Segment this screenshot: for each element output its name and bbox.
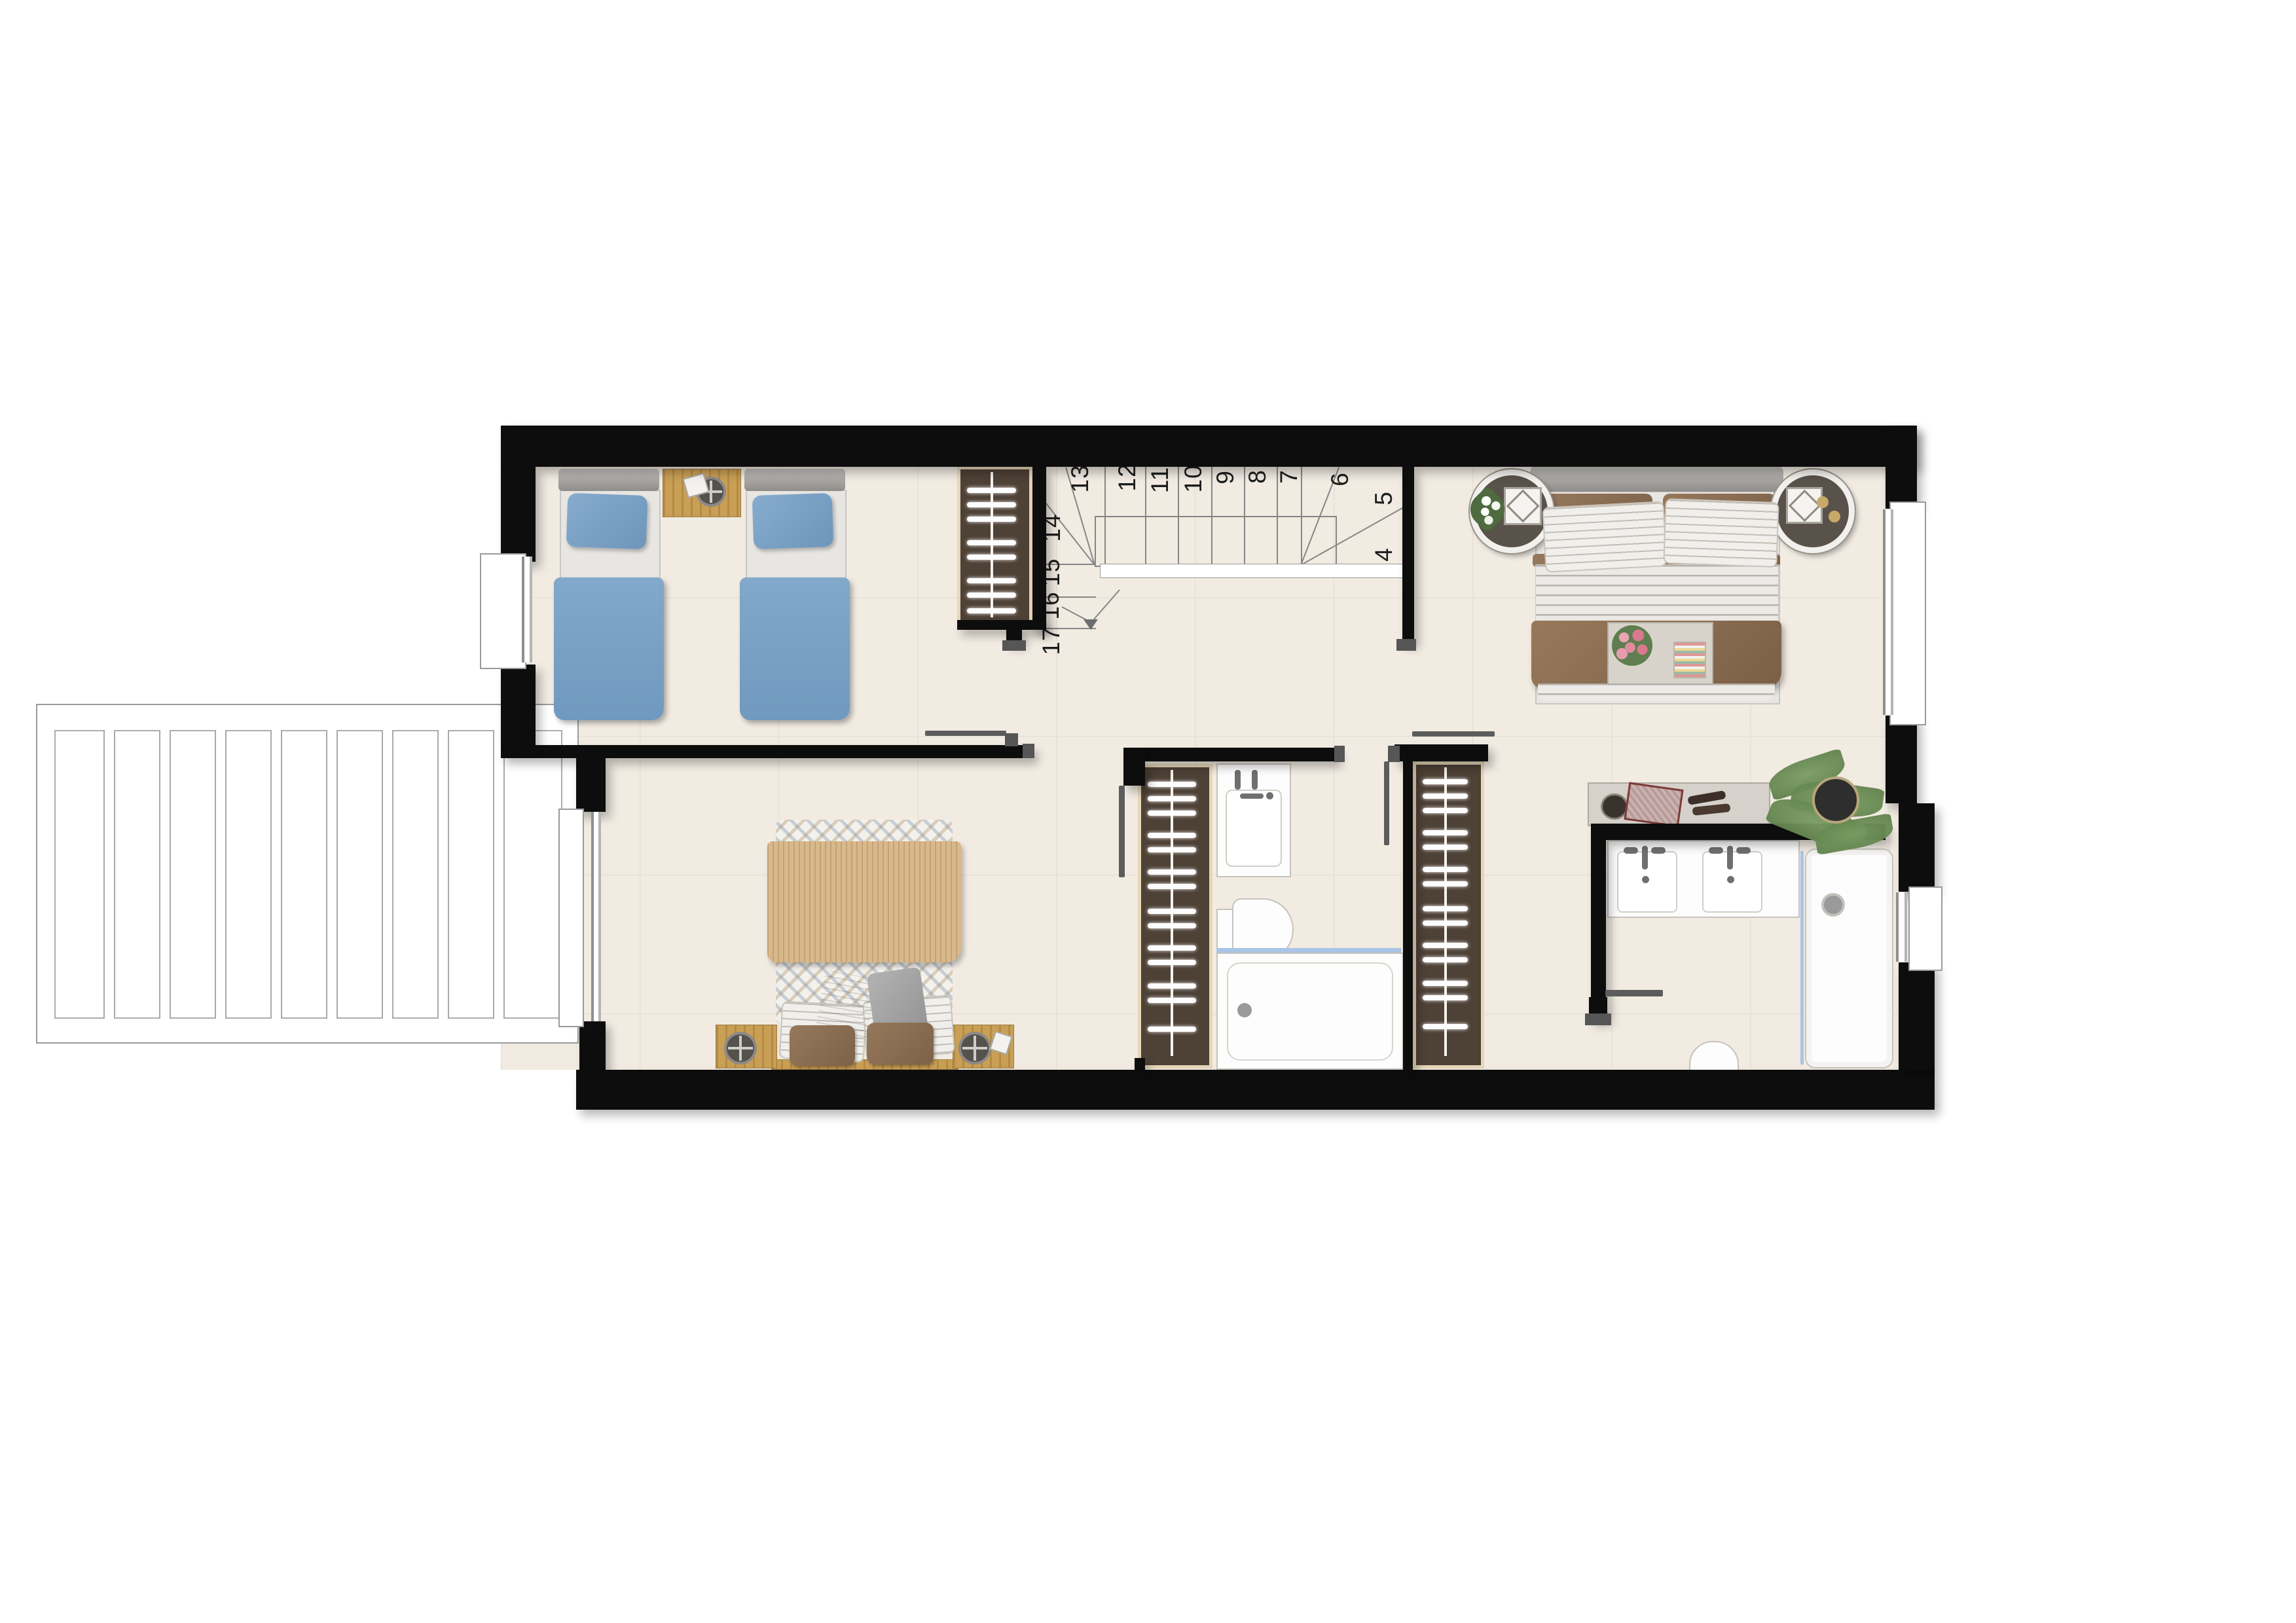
stair-step-number: 4 — [1370, 547, 1398, 562]
terrace-beam — [437, 730, 449, 1019]
sliding-door-bath — [1384, 761, 1389, 845]
wall-top — [501, 426, 1917, 467]
desk-books — [1624, 782, 1683, 827]
wardrobe-rail-bar — [1148, 869, 1196, 875]
stair-inner-rail — [1095, 516, 1337, 567]
wardrobe-rail-bar — [1423, 906, 1468, 911]
door-cap-stair-stub — [1002, 640, 1026, 651]
window-master-box — [1889, 501, 1926, 725]
wall-right-upper — [1886, 426, 1917, 509]
door-jamb-bath — [1388, 746, 1400, 762]
wardrobe-rail-bar — [1148, 811, 1196, 816]
terrace-beam — [326, 730, 338, 1019]
washbasin-bowl — [1226, 790, 1282, 867]
wardrobe-rail-bar — [1423, 867, 1468, 872]
wall-right-lower — [1899, 962, 1935, 1070]
wardrobe-rail-bar — [1423, 943, 1468, 948]
window-ensuite-glass — [1896, 892, 1907, 962]
wall-left-lower — [501, 665, 536, 745]
faucet-icon — [1642, 846, 1648, 869]
wall-right-mid2 — [1899, 803, 1935, 892]
window-ensuite-box — [1908, 886, 1942, 971]
sliding-door-ensuite — [1605, 990, 1663, 996]
terrace-door-glass — [591, 812, 601, 1021]
plant-pot — [1812, 776, 1859, 824]
tray-icon — [958, 1032, 991, 1065]
twin-bed1-headboard — [558, 469, 659, 491]
wardrobe-rail-bar — [1423, 995, 1468, 1000]
terrace-inner-top-line — [54, 730, 562, 731]
master-sheet-bottom — [1538, 684, 1775, 701]
master-tray-book — [1673, 642, 1706, 678]
master-pillow-white-left — [1542, 501, 1667, 573]
wall-bottom — [576, 1070, 1935, 1110]
door-cap-ensuite — [1585, 1013, 1611, 1025]
double-bed-knit-throw — [767, 841, 961, 962]
faucet-dot — [1237, 1003, 1252, 1017]
door-cap-twin2 — [1023, 744, 1034, 758]
master-duvet — [1535, 564, 1779, 629]
wall-left-upper — [501, 467, 536, 562]
shower — [1805, 848, 1893, 1068]
wardrobe-bedroom2 — [1138, 764, 1212, 1068]
door-cap-master — [1396, 639, 1416, 651]
wardrobe-rail-bar — [967, 540, 1016, 545]
terrace-beam — [159, 730, 171, 1019]
stair-void-strip — [1100, 564, 1404, 578]
faucet-icon — [1240, 793, 1264, 799]
wardrobe-rail-bar — [1423, 808, 1468, 813]
stair-step-number: 9 — [1212, 470, 1239, 484]
wall-wardrobe3-west — [1403, 761, 1413, 1070]
stair-step-number: 13 — [1066, 464, 1094, 492]
tray-icon — [724, 1032, 757, 1065]
twin-bed1-pillow — [566, 493, 648, 549]
sliding-door-bedroom2 — [1119, 786, 1125, 877]
stair-step-number: 12 — [1114, 463, 1141, 491]
wardrobe-rail-bar — [1148, 796, 1196, 801]
master-bed-headboard — [1530, 465, 1783, 492]
stair-step-number: 10 — [1180, 464, 1207, 492]
shower-glass — [1800, 851, 1804, 1065]
twin-bed2-headboard — [744, 469, 845, 491]
window-master-glass — [1883, 509, 1893, 715]
wardrobe-rail-bar — [1148, 833, 1196, 838]
stair-step-number: 6 — [1326, 472, 1354, 486]
flower-icon — [1612, 625, 1652, 666]
terrace-beam — [103, 730, 115, 1019]
master-nightstand-gold-dots — [1817, 496, 1829, 508]
wardrobe-rail-bar — [1148, 960, 1196, 965]
wardrobe-rail-bar — [1148, 1027, 1196, 1032]
wall-twin-south — [501, 745, 1033, 758]
stair-step-number: 11 — [1146, 467, 1174, 493]
double-bed-cushion-left — [790, 1025, 855, 1066]
drain-icon — [1821, 893, 1845, 917]
faucet-icon — [1727, 846, 1733, 869]
twin-bed2-blanket — [740, 577, 850, 720]
wardrobe-rail-bar — [967, 578, 1016, 583]
sliding-door-master — [1412, 731, 1495, 737]
wall-bed2-west-upper — [576, 758, 606, 812]
wardrobe-rail-bar — [1423, 1024, 1468, 1029]
wall-wardrobe1-cap — [957, 620, 1046, 630]
faucet-dot — [1727, 876, 1734, 883]
door-jamb-bath — [1334, 746, 1345, 762]
stair-step-number: 8 — [1244, 469, 1271, 484]
faucet-icon — [1709, 847, 1723, 854]
double-bed-cushion-right — [867, 1023, 934, 1065]
twin-bed2-pillow — [752, 493, 834, 549]
wardrobe-rail-bar — [967, 502, 1016, 507]
bathtub-inner — [1227, 962, 1393, 1061]
stair-step-number: 7 — [1275, 469, 1303, 484]
wardrobe-rail-bar — [1423, 921, 1468, 926]
wall-right-mid — [1886, 716, 1917, 803]
terrace-beam — [493, 730, 505, 1019]
window-twin-glass — [522, 556, 532, 663]
wardrobe-rail-bar — [1423, 845, 1468, 850]
wardrobe-rail-bar — [1148, 945, 1196, 951]
wall-stair-east — [1402, 467, 1414, 643]
wardrobe-rail-bar — [1423, 779, 1468, 784]
wardrobe-rail-bar — [967, 517, 1016, 522]
terrace-inner-left-line — [54, 730, 56, 1019]
wardrobe-rail-bar — [1423, 793, 1468, 799]
floor-plan-canvas: 4567891011121314151617 — [0, 0, 2296, 1623]
wall-bed2-west-lower — [579, 1021, 606, 1070]
terrace-beam — [270, 730, 282, 1019]
faucet-icon — [1651, 847, 1666, 854]
wardrobe-rail-bar — [967, 593, 1016, 598]
terrace-door-box — [558, 809, 584, 1027]
terrace-beam — [382, 730, 393, 1019]
wardrobe-rail-bar — [1148, 998, 1196, 1003]
faucet-icon — [1624, 847, 1638, 854]
master-pillow-white-right — [1663, 498, 1779, 568]
wardrobe-rail-bar — [1148, 983, 1196, 989]
wall-hall-south — [1394, 744, 1488, 761]
faucet-dot — [1642, 876, 1649, 883]
wardrobe-rail-bar — [1423, 830, 1468, 835]
faucet-icon — [1252, 770, 1258, 790]
faucet-icon — [1736, 847, 1751, 854]
bathtub-glass — [1216, 948, 1401, 953]
wall-wardrobe1-side — [1032, 467, 1046, 630]
twin-bed1-blanket — [554, 577, 664, 720]
door-cap-twin — [1005, 733, 1018, 746]
faucet-dot — [1266, 792, 1273, 799]
stair-step-number: 5 — [1370, 491, 1398, 505]
wall-ensuite-west — [1591, 840, 1606, 997]
wardrobe-rail-bar — [1423, 881, 1468, 886]
wall-bed2-east-stub-top — [1123, 748, 1145, 786]
wardrobe-rail-bar — [1148, 847, 1196, 852]
wardrobe-rail-bar — [1148, 782, 1196, 787]
wardrobe-rail-bar — [1148, 884, 1196, 889]
wardrobe-rail-bar — [1148, 909, 1196, 914]
wardrobe-rail-bar — [967, 488, 1016, 493]
wall-bath-north — [1145, 748, 1337, 761]
stair-step-number: 17 — [1038, 627, 1065, 655]
arrow-down-icon — [1084, 619, 1098, 630]
wardrobe-rail-bar — [967, 608, 1016, 613]
terrace-beam — [215, 730, 227, 1019]
wardrobe-rail-bar — [1423, 981, 1468, 986]
wardrobe-rail-bar — [967, 555, 1016, 560]
faucet-icon — [1235, 770, 1241, 790]
wardrobe-rail-bar — [1148, 923, 1196, 928]
wardrobe-rail-bar — [1423, 957, 1468, 962]
sliding-door-twin — [925, 731, 1006, 736]
terrace-inner-bottom-line — [54, 1017, 562, 1019]
window-twin-box — [480, 553, 526, 669]
master-nightstand-frame-left — [1504, 487, 1542, 525]
terrace-pergola — [36, 704, 579, 1044]
wall-bed2-east-stub-bottom — [1135, 1058, 1145, 1070]
